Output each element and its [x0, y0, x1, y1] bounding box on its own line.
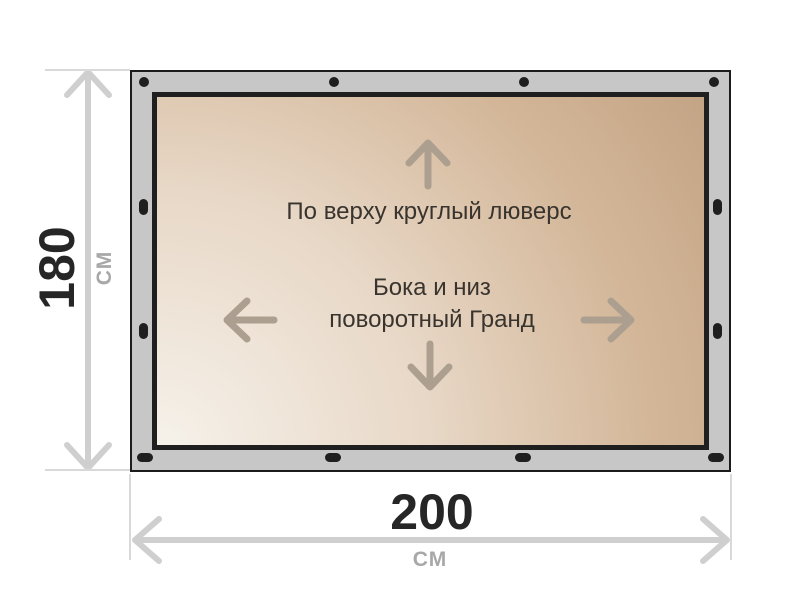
width-unit: СМ: [413, 548, 447, 572]
round-grommet-icon: [709, 77, 719, 87]
height-unit: СМ: [93, 251, 117, 285]
oval-grommet-icon: [515, 453, 531, 462]
oval-grommet-icon: [139, 199, 148, 215]
oval-grommet-icon: [139, 323, 148, 339]
oval-grommet-icon: [713, 323, 722, 339]
extension-line: [129, 474, 131, 560]
side-grommet-note: Бока и низ поворотный Гранд: [329, 272, 535, 336]
top-grommet-note: По верху круглый люверс: [286, 198, 571, 226]
oval-grommet-icon: [137, 453, 153, 462]
up-arrow-icon: [404, 136, 452, 190]
right-arrow-icon: [580, 296, 636, 344]
banner-dimension-diagram: По верху круглый люверс Бока и низ повор…: [0, 0, 800, 600]
extension-line: [45, 469, 130, 471]
height-value: 180: [28, 226, 86, 309]
width-value: 200: [390, 483, 473, 541]
side-grommet-note-line2: поворотный Гранд: [329, 304, 535, 336]
oval-grommet-icon: [713, 199, 722, 215]
round-grommet-icon: [519, 77, 529, 87]
oval-grommet-icon: [325, 453, 341, 462]
banner-frame: [130, 70, 731, 472]
left-arrow-icon: [222, 296, 278, 344]
oval-grommet-icon: [708, 453, 724, 462]
extension-line: [45, 69, 130, 71]
round-grommet-icon: [329, 77, 339, 87]
side-grommet-note-line1: Бока и низ: [329, 272, 535, 304]
round-grommet-icon: [139, 77, 149, 87]
down-arrow-icon: [406, 340, 454, 394]
extension-line: [730, 474, 732, 560]
